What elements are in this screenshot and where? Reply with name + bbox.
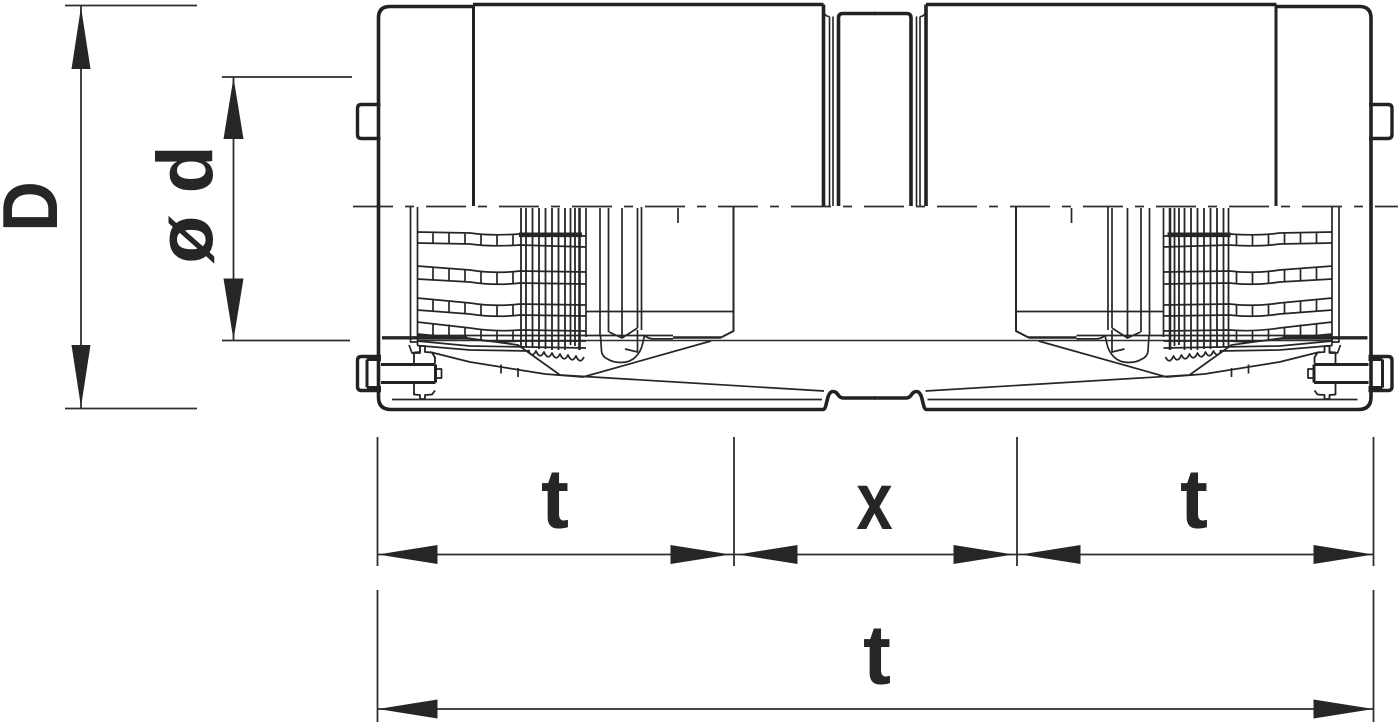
- svg-text:t: t: [1180, 452, 1208, 546]
- svg-text:x: x: [856, 455, 892, 547]
- svg-text:ø d: ø d: [140, 145, 229, 263]
- svg-text:t: t: [863, 608, 891, 702]
- svg-text:t: t: [541, 452, 569, 546]
- svg-text:D: D: [0, 181, 74, 232]
